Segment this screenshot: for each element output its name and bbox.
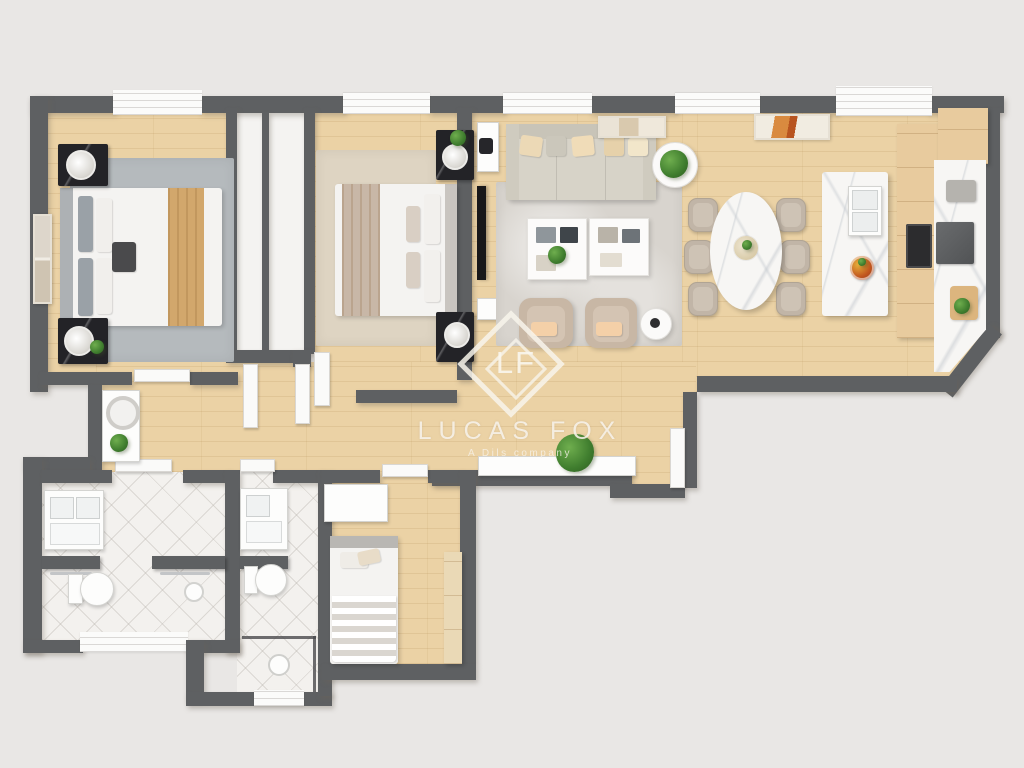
bathroom1-toilet-bowl xyxy=(80,572,114,606)
wall-bath1-top-2 xyxy=(183,470,230,483)
built-in-oven xyxy=(906,224,932,268)
bedroom3-headboard xyxy=(330,536,398,548)
wall-closet-divider xyxy=(262,112,269,352)
dining-chair-1-pad xyxy=(693,203,713,227)
wall-bath2-step xyxy=(186,640,204,700)
bedroom3-closet xyxy=(444,552,462,664)
dining-chair-6-pad xyxy=(781,287,801,311)
window-bedroom2 xyxy=(343,92,430,114)
bathroom2-shower-glass-h xyxy=(242,636,316,639)
door-closet-1 xyxy=(243,364,258,428)
book-5 xyxy=(622,229,640,243)
wall-bedroom3-right xyxy=(460,470,476,664)
wall-bedroom3-bottom xyxy=(322,664,476,680)
bedroom2-pillow-2 xyxy=(424,250,440,302)
bathroom1-towel-rail-2 xyxy=(160,572,210,575)
master-lamp-1 xyxy=(66,150,96,180)
wall-top-5 xyxy=(758,96,838,113)
armchair-2-pillow xyxy=(596,322,622,336)
window-kitchen-bay xyxy=(836,86,932,116)
sofa-arm-left xyxy=(506,124,519,200)
bedroom2-headboard xyxy=(445,184,457,316)
sofa-pillow-1 xyxy=(519,135,544,158)
wall-bath-divider xyxy=(225,470,240,653)
bathroom2-toilet-bowl xyxy=(255,564,287,596)
book-6 xyxy=(600,253,622,267)
bedroom2-pillow-1 xyxy=(424,194,440,244)
wall-tv-screen xyxy=(477,186,486,280)
wall-master-bottom-1 xyxy=(40,372,132,385)
bedroom2-lamp-1 xyxy=(442,144,468,170)
wall-top-4 xyxy=(590,96,677,113)
window-living-2 xyxy=(675,92,760,114)
wall-bath2-top xyxy=(273,470,322,483)
sofa-pillow-5 xyxy=(628,138,648,156)
dining-chair-5-pad xyxy=(785,245,805,269)
dining-chair-4-pad xyxy=(781,203,801,227)
master-pillow-white-1 xyxy=(96,198,112,252)
sofa-pillow-3 xyxy=(571,135,595,157)
dining-chair-2-pad xyxy=(689,245,709,269)
master-throw-dark xyxy=(112,242,136,272)
window-master xyxy=(113,90,202,115)
sofa-pillow-4 xyxy=(604,136,624,156)
dining-chair-6 xyxy=(776,282,806,316)
window-living-1 xyxy=(503,92,592,114)
bathroom1-sink-1 xyxy=(50,497,74,519)
master-headboard xyxy=(60,188,73,326)
door-bedroom3 xyxy=(382,464,428,477)
bathroom1-shower-drain xyxy=(184,582,204,602)
book-1 xyxy=(536,227,556,243)
door-bathroom2 xyxy=(240,459,275,472)
bathroom2-sink xyxy=(246,495,270,517)
sink-basin-1 xyxy=(852,190,878,210)
bathroom1-vanity-counter xyxy=(50,523,100,545)
bedroom3-wardrobe xyxy=(324,484,388,522)
bathroom1-halfwall-2 xyxy=(152,556,225,569)
wall-hall-left xyxy=(88,385,102,470)
console-decor xyxy=(479,138,493,154)
bathroom1-vanity xyxy=(44,490,104,550)
book-2 xyxy=(560,227,578,243)
accent-table-decor xyxy=(650,318,660,328)
closet-floor xyxy=(237,113,304,352)
sink-basin-2 xyxy=(852,212,878,232)
wall-top-2 xyxy=(200,96,345,113)
wall-closet-right xyxy=(304,108,315,354)
wall-master-bottom-2 xyxy=(190,372,238,385)
floor-artwork-2 xyxy=(754,114,830,140)
sofa-pillow-2 xyxy=(546,136,566,156)
wall-living-bottom xyxy=(697,376,957,392)
wall-bedroom3-top-1 xyxy=(322,470,380,483)
bathroom2-shower-head xyxy=(268,654,290,676)
master-lamp-2 xyxy=(64,326,94,356)
bedroom2-pillow-4 xyxy=(406,252,420,288)
master-blanket-tan xyxy=(168,188,204,326)
wall-bath1-top xyxy=(42,470,112,483)
island-sink xyxy=(848,186,882,236)
window-bathroom1 xyxy=(80,632,188,652)
coffee-table-2 xyxy=(589,218,649,276)
bathroom1-sink-2 xyxy=(76,497,100,519)
window-bathroom2 xyxy=(254,690,304,706)
bedroom3-striped-blanket xyxy=(332,596,396,662)
dining-chair-4 xyxy=(776,198,806,232)
bedroom2-blanket-taupe xyxy=(342,184,380,316)
floor-plan: LF LUCAS FOX A Dils company xyxy=(0,0,1024,768)
bathroom2-vanity-counter xyxy=(246,521,282,543)
book-4 xyxy=(598,227,618,243)
floor-artwork-1 xyxy=(598,116,666,138)
bathroom2-shower-glass-v xyxy=(313,636,316,692)
coffee-machine xyxy=(946,180,976,202)
wall-entry xyxy=(683,392,697,488)
dining-chair-3 xyxy=(688,282,718,316)
wall-bath1-left xyxy=(23,457,42,653)
master-pillow-grey-1 xyxy=(78,196,93,252)
kitchen-corner-cabinet xyxy=(938,108,988,164)
master-pillow-grey-2 xyxy=(78,258,93,316)
round-mirror xyxy=(106,396,140,430)
bathroom2-vanity xyxy=(240,488,288,550)
dining-chair-3-pad xyxy=(693,287,713,311)
door-master-bedroom xyxy=(134,369,190,382)
wall-bath1-bottom-1 xyxy=(23,640,83,653)
wall-bedroom2-bottom xyxy=(356,390,457,403)
bathroom1-halfwall-1 xyxy=(42,556,100,569)
door-bedroom2 xyxy=(314,352,330,406)
master-wall-art xyxy=(33,214,52,304)
armchair-1-pillow xyxy=(531,322,557,336)
door-closet-2 xyxy=(295,364,310,424)
bedroom2-lamp-2 xyxy=(444,322,470,348)
bedroom2-pillow-3 xyxy=(406,206,420,242)
master-pillow-white-2 xyxy=(96,258,112,314)
dining-chair-5 xyxy=(780,240,810,274)
cooktop xyxy=(936,222,974,264)
wall-bedroom3-top-2 xyxy=(428,470,462,483)
door-entry xyxy=(670,428,685,488)
